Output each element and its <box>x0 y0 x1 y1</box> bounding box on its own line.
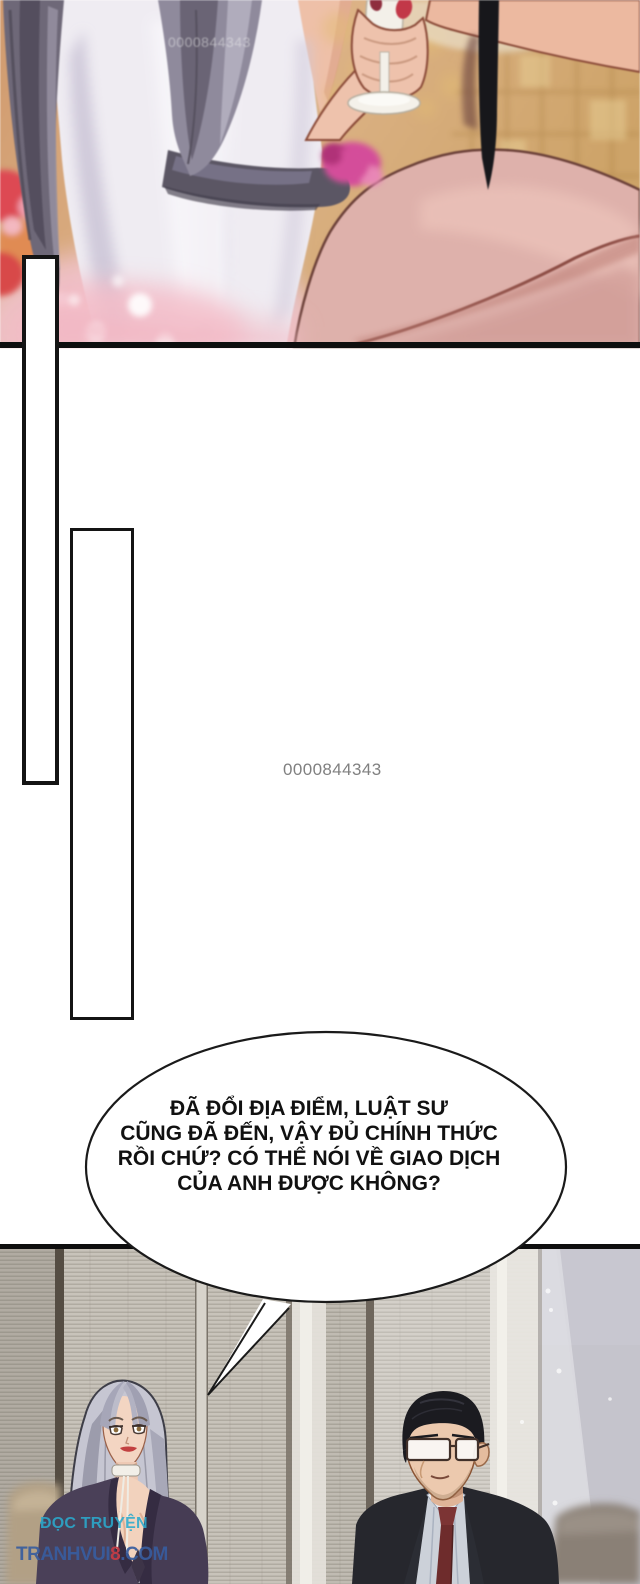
svg-text:0000844343: 0000844343 <box>168 34 251 50</box>
